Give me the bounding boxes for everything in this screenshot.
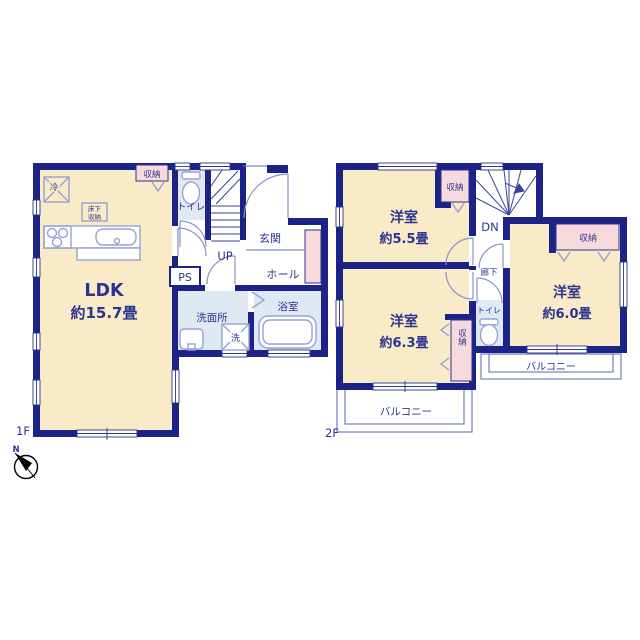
room-label-bathroom: 浴室 xyxy=(278,300,299,313)
floor-label-1f: 1F xyxy=(16,424,30,438)
wall xyxy=(240,163,246,240)
toilet-tank xyxy=(182,172,200,179)
kitchen-counter-return xyxy=(77,248,140,260)
wall xyxy=(336,262,476,269)
wall xyxy=(288,218,328,225)
ps-label: PS xyxy=(178,271,192,284)
wall xyxy=(267,165,288,173)
toilet-bowl-icon xyxy=(183,182,200,204)
door-opening xyxy=(248,291,254,312)
floor-1f-plan: LDK 約15.7畳 玄関 ホール トイレ UP PS 洗面所 洗 浴室 収納 … xyxy=(16,163,328,440)
storage-label-63: 収納 xyxy=(457,328,467,347)
floor-2f-plan: 洋室 約5.5畳 洋室 約6.3畳 洋室 約6.0畳 収納 収納 収納 DN 廊… xyxy=(325,163,627,440)
wall xyxy=(503,217,510,353)
wall xyxy=(536,163,543,224)
room-label-toilet-1f: トイレ xyxy=(177,202,206,213)
wall xyxy=(503,217,627,224)
door-opening xyxy=(172,226,178,256)
toilet-bowl-icon xyxy=(481,325,498,346)
room-label-63: 洋室 xyxy=(390,313,418,330)
compass: N xyxy=(12,445,37,479)
door-opening xyxy=(503,240,510,268)
wall xyxy=(205,163,211,240)
room-label-washroom: 洗面所 xyxy=(196,312,228,324)
wall xyxy=(549,224,556,253)
washbasin xyxy=(180,329,203,349)
room-size-60: 約6.0畳 xyxy=(542,306,591,322)
room-label-toilet-2f: トイレ xyxy=(477,306,501,315)
shoe-cabinet xyxy=(305,230,321,283)
room-size-55: 約5.5畳 xyxy=(379,231,428,247)
wall xyxy=(336,163,543,170)
stairs-down-label: DN xyxy=(481,220,498,234)
stairs-up-label: UP xyxy=(217,249,232,263)
wall xyxy=(435,202,451,208)
balcony-left-label: バルコニー xyxy=(380,406,432,418)
fridge-label: 冷 xyxy=(50,182,59,193)
room-label-hall: ホール xyxy=(267,268,300,281)
underfloor-storage-label-2: 収納 xyxy=(88,212,101,221)
compass-north-label: N xyxy=(12,445,19,455)
room-label-55: 洋室 xyxy=(390,209,418,226)
room-label-genkan: 玄関 xyxy=(259,231,281,245)
room-label-ldk: LDK xyxy=(84,281,125,301)
room-size-ldk: 約15.7畳 xyxy=(70,304,137,322)
door-opening xyxy=(205,285,235,291)
wall xyxy=(336,163,343,390)
storage-label-55: 収納 xyxy=(446,182,463,193)
floor-plan: LDK 約15.7畳 玄関 ホール トイレ UP PS 洗面所 洗 浴室 収納 … xyxy=(0,0,640,640)
balcony-right-label: バルコニー xyxy=(526,361,576,373)
hallway-label: 廊下 xyxy=(480,267,498,278)
room-label-60: 洋室 xyxy=(553,284,581,301)
floor-plan-canvas: LDK 約15.7畳 玄関 ホール トイレ UP PS 洗面所 洗 浴室 収納 … xyxy=(0,0,640,640)
floor-label-2f: 2F xyxy=(325,426,339,440)
storage-label-60: 収納 xyxy=(579,232,597,244)
laundry-label: 洗 xyxy=(231,332,240,344)
storage-label-1f: 収納 xyxy=(143,169,160,180)
wall xyxy=(172,163,178,356)
room-size-63: 約6.3畳 xyxy=(379,335,428,351)
wall xyxy=(445,314,472,320)
underfloor-storage-label-1: 床下 xyxy=(88,204,102,213)
